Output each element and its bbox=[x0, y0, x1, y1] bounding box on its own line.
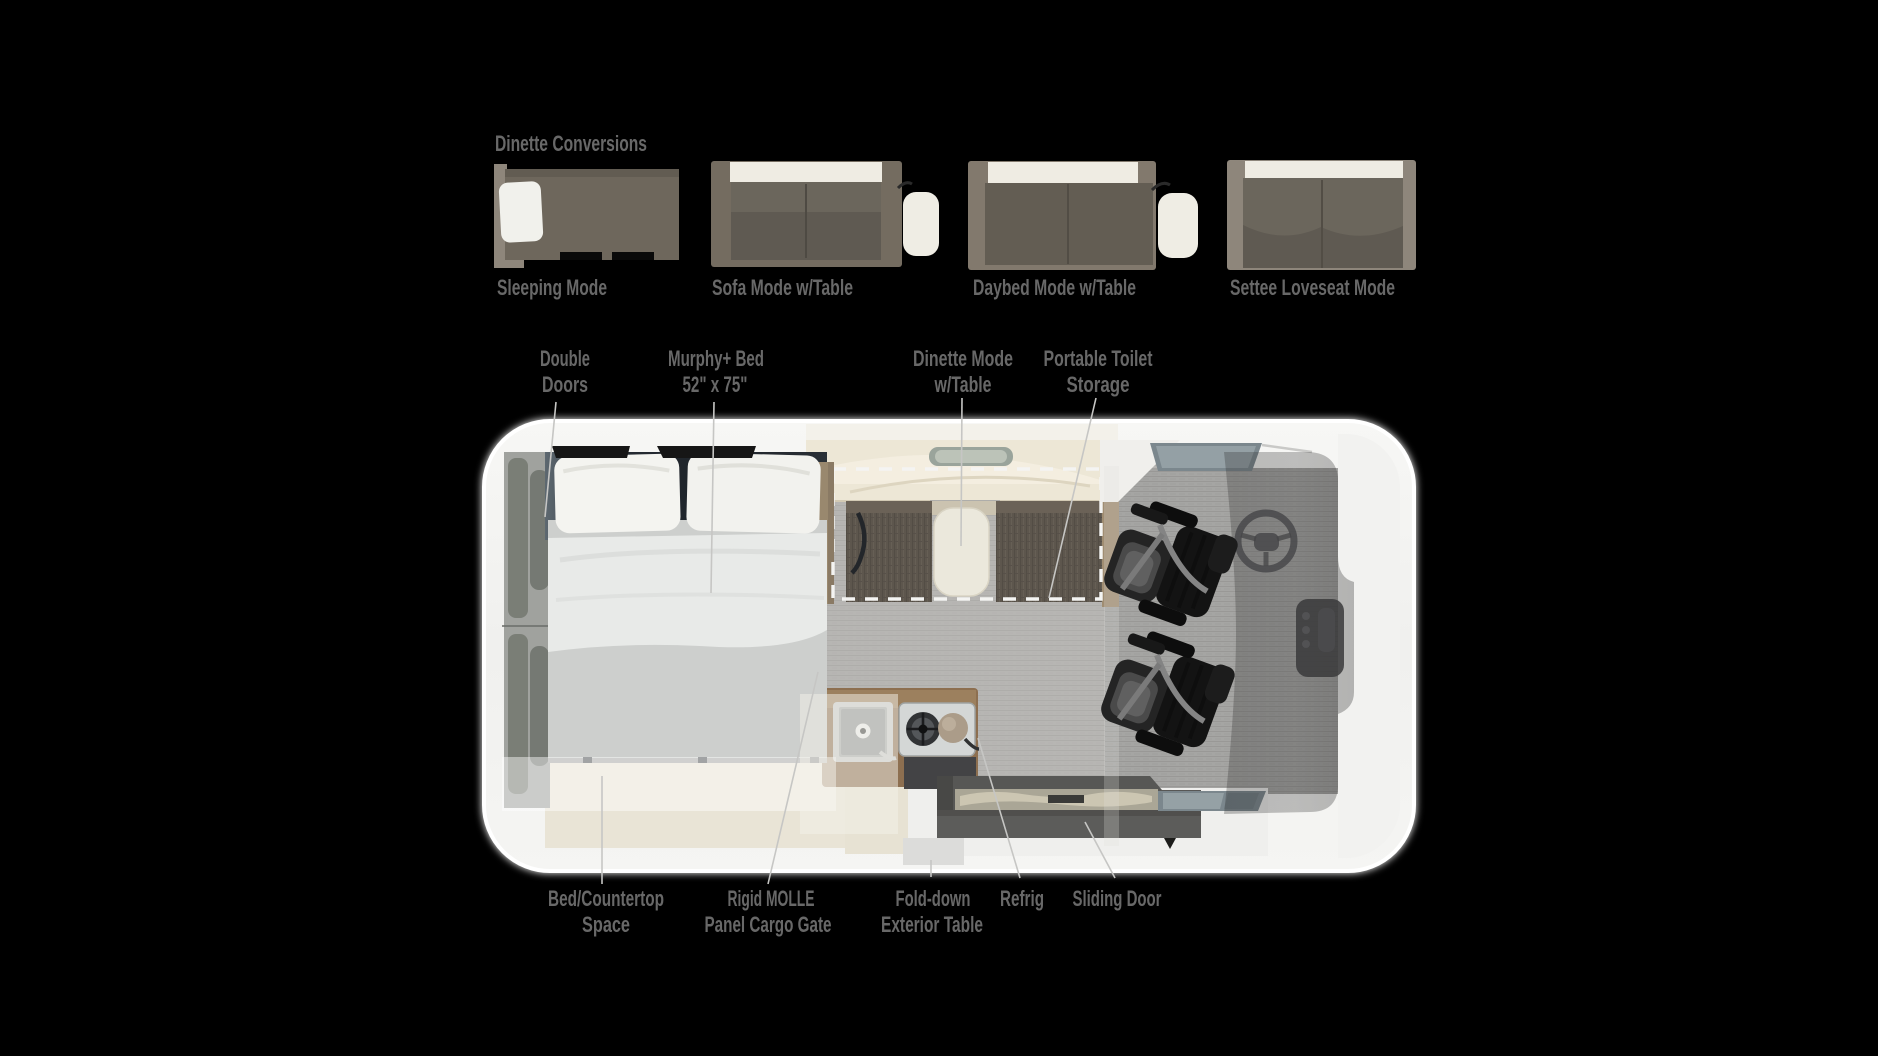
svg-text:Rigid MOLLE: Rigid MOLLE bbox=[728, 886, 815, 911]
svg-text:52" x 75": 52" x 75" bbox=[683, 372, 748, 397]
svg-text:Daybed Mode w/Table: Daybed Mode w/Table bbox=[973, 275, 1136, 300]
svg-text:Portable Toilet: Portable Toilet bbox=[1044, 346, 1153, 371]
svg-text:Doors: Doors bbox=[542, 372, 588, 397]
svg-text:Bed/Countertop: Bed/Countertop bbox=[548, 886, 664, 911]
svg-text:w/Table: w/Table bbox=[934, 372, 992, 397]
svg-text:Murphy+ Bed: Murphy+ Bed bbox=[668, 346, 764, 371]
svg-text:Storage: Storage bbox=[1067, 372, 1130, 397]
svg-text:Double: Double bbox=[540, 346, 590, 371]
svg-text:Dinette Mode: Dinette Mode bbox=[913, 346, 1013, 371]
svg-text:Sleeping Mode: Sleeping Mode bbox=[497, 275, 607, 300]
svg-text:Sliding Door: Sliding Door bbox=[1073, 886, 1162, 911]
svg-text:Panel Cargo Gate: Panel Cargo Gate bbox=[705, 912, 832, 937]
svg-text:Dinette Conversions: Dinette Conversions bbox=[495, 131, 647, 156]
svg-text:Refrig: Refrig bbox=[1000, 886, 1044, 911]
svg-text:Fold-down: Fold-down bbox=[896, 886, 971, 911]
svg-text:Sofa Mode w/Table: Sofa Mode w/Table bbox=[712, 275, 853, 300]
svg-text:Exterior Table: Exterior Table bbox=[881, 912, 983, 937]
svg-text:Settee Loveseat Mode: Settee Loveseat Mode bbox=[1230, 275, 1395, 300]
svg-text:Space: Space bbox=[582, 912, 630, 937]
